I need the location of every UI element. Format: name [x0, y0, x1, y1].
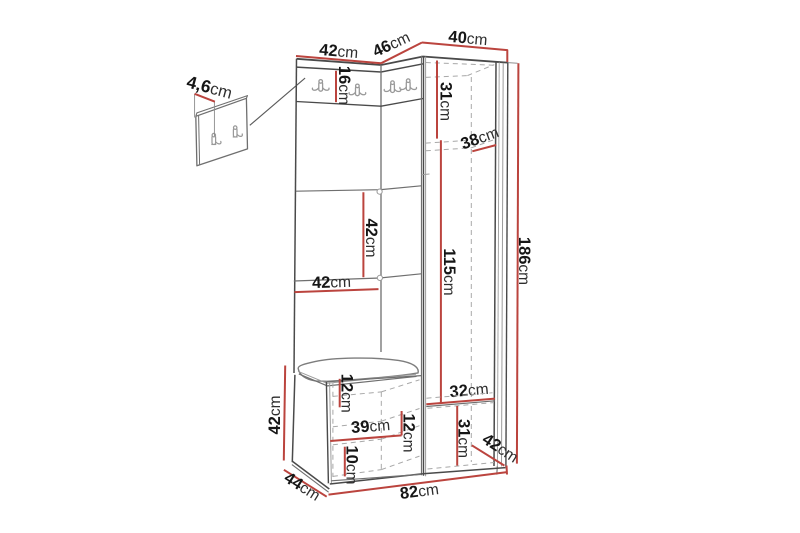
svg-text:186cm: 186cm — [515, 237, 533, 285]
svg-text:115cm: 115cm — [440, 248, 458, 295]
svg-text:32cm: 32cm — [449, 380, 489, 401]
svg-text:10cm: 10cm — [343, 445, 361, 484]
svg-text:42cm: 42cm — [312, 273, 352, 292]
svg-text:42cm: 42cm — [362, 218, 380, 257]
svg-text:40cm: 40cm — [448, 28, 488, 49]
svg-text:42cm: 42cm — [266, 395, 284, 434]
svg-text:16cm: 16cm — [335, 66, 353, 105]
svg-text:39cm: 39cm — [350, 416, 390, 437]
svg-text:12cm: 12cm — [400, 413, 418, 452]
svg-text:31cm: 31cm — [454, 419, 472, 458]
svg-text:42cm: 42cm — [319, 41, 359, 62]
svg-text:12cm: 12cm — [338, 374, 356, 413]
svg-text:31cm: 31cm — [436, 82, 454, 121]
